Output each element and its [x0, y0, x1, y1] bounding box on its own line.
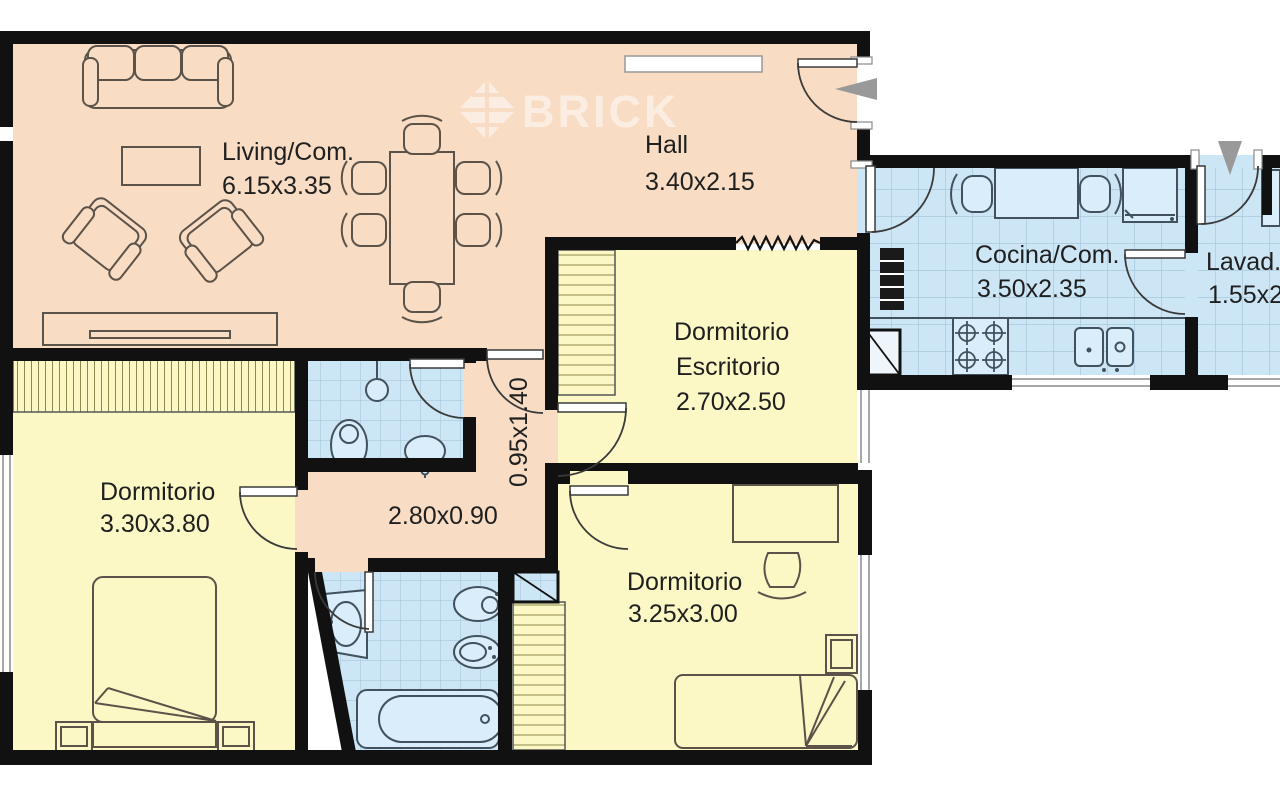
window-kitchen — [1012, 375, 1150, 390]
nightstand — [218, 722, 254, 751]
label-studio-dims: 2.70x2.50 — [676, 388, 786, 416]
sideboard — [43, 313, 277, 345]
closet-shaft — [513, 572, 558, 602]
wall-break — [0, 127, 13, 141]
watermark-text: BRICK — [522, 86, 680, 137]
label-hall-dims: 3.40x2.15 — [645, 168, 755, 196]
window-laundry — [1228, 375, 1280, 390]
stove — [953, 318, 1008, 375]
vent-shaft — [866, 330, 900, 375]
single-bed — [675, 675, 857, 748]
label-studio-2: Escritorio — [676, 353, 780, 381]
label-bedroom-second: Dormitorio — [627, 568, 742, 596]
grille — [880, 248, 904, 310]
bathroom-toilet — [454, 587, 502, 621]
wardrobe-bedroom-studio — [558, 250, 615, 395]
wardrobe-bedroom-main — [13, 358, 295, 412]
nightstand — [826, 635, 857, 673]
window-bedroom-second — [858, 555, 872, 690]
label-living: Living/Com. — [222, 138, 354, 166]
window-bedroom-main — [0, 455, 13, 672]
label-bedroom-second-dims: 3.25x3.00 — [628, 600, 738, 628]
coffee-table — [122, 147, 200, 185]
label-hall: Hall — [645, 131, 688, 159]
label-living-dims: 6.15x3.35 — [222, 172, 332, 200]
wall-niche — [625, 56, 762, 72]
bidet — [454, 636, 500, 668]
wardrobe-bedroom-second — [513, 602, 565, 750]
label-kitchen: Cocina/Com. — [975, 241, 1120, 269]
kitchen-table — [995, 168, 1078, 218]
label-laundry-dims: 1.55x2. — [1208, 281, 1280, 309]
label-studio: Dormitorio — [674, 318, 789, 346]
kitchen-chair — [962, 176, 992, 212]
double-bed — [93, 577, 216, 747]
label-kitchen-dims: 3.50x2.35 — [977, 275, 1087, 303]
floor-plan: BRICK Living/Com. 6.15x3.35 Hall 3.40x2.… — [0, 0, 1280, 800]
fridge — [1123, 168, 1177, 222]
window-studio — [858, 390, 872, 463]
label-bedroom-main: Dormitorio — [100, 478, 215, 506]
label-bedroom-main-dims: 3.30x3.80 — [100, 510, 210, 538]
label-passage-dims: 0.95x1.40 — [505, 377, 533, 487]
sofa — [83, 46, 233, 108]
bathtub — [357, 690, 503, 748]
nightstand — [56, 722, 92, 751]
label-laundry: Lavad. — [1206, 248, 1280, 276]
label-hallway-dims: 2.80x0.90 — [388, 502, 498, 530]
kitchen-chair — [1080, 176, 1110, 212]
